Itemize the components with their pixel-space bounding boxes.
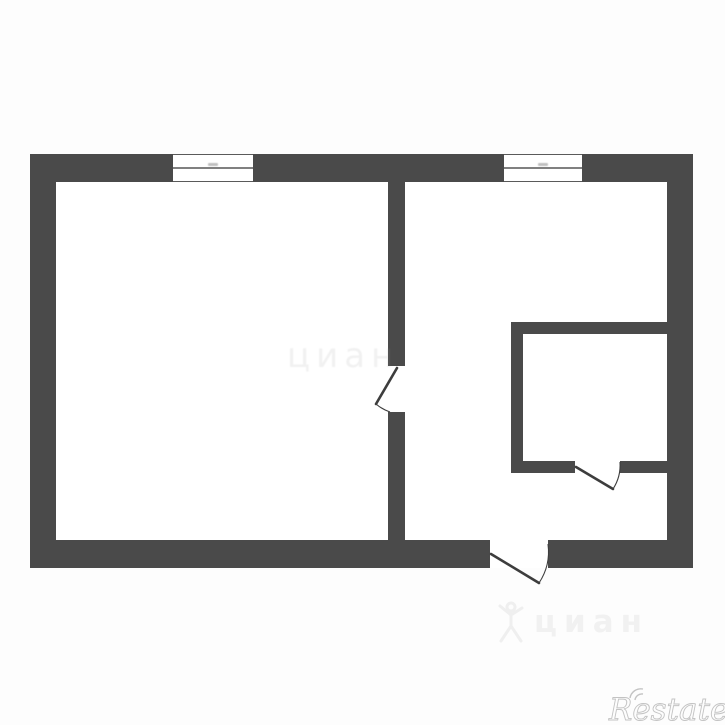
- watermark-restate: Restate: [606, 684, 725, 725]
- watermark-center: циан: [287, 336, 399, 376]
- door-partition-swing-arc: [376, 404, 390, 412]
- door-inner-room: [576, 462, 620, 489]
- door-inner-room-leaf: [576, 467, 613, 489]
- door-entrance: [491, 544, 548, 583]
- door-inner-room-swing-arc: [613, 462, 620, 489]
- door-entrance-swing-arc: [539, 544, 548, 583]
- watermark-cian-text: циан: [534, 604, 649, 640]
- door-entrance-leaf: [491, 554, 539, 583]
- cian-figure-icon: [496, 600, 526, 644]
- floor-plan-image: циан: [0, 0, 725, 725]
- watermark-cian-bottom: циан: [496, 600, 649, 644]
- watermark-restate-text: Restate: [608, 692, 725, 725]
